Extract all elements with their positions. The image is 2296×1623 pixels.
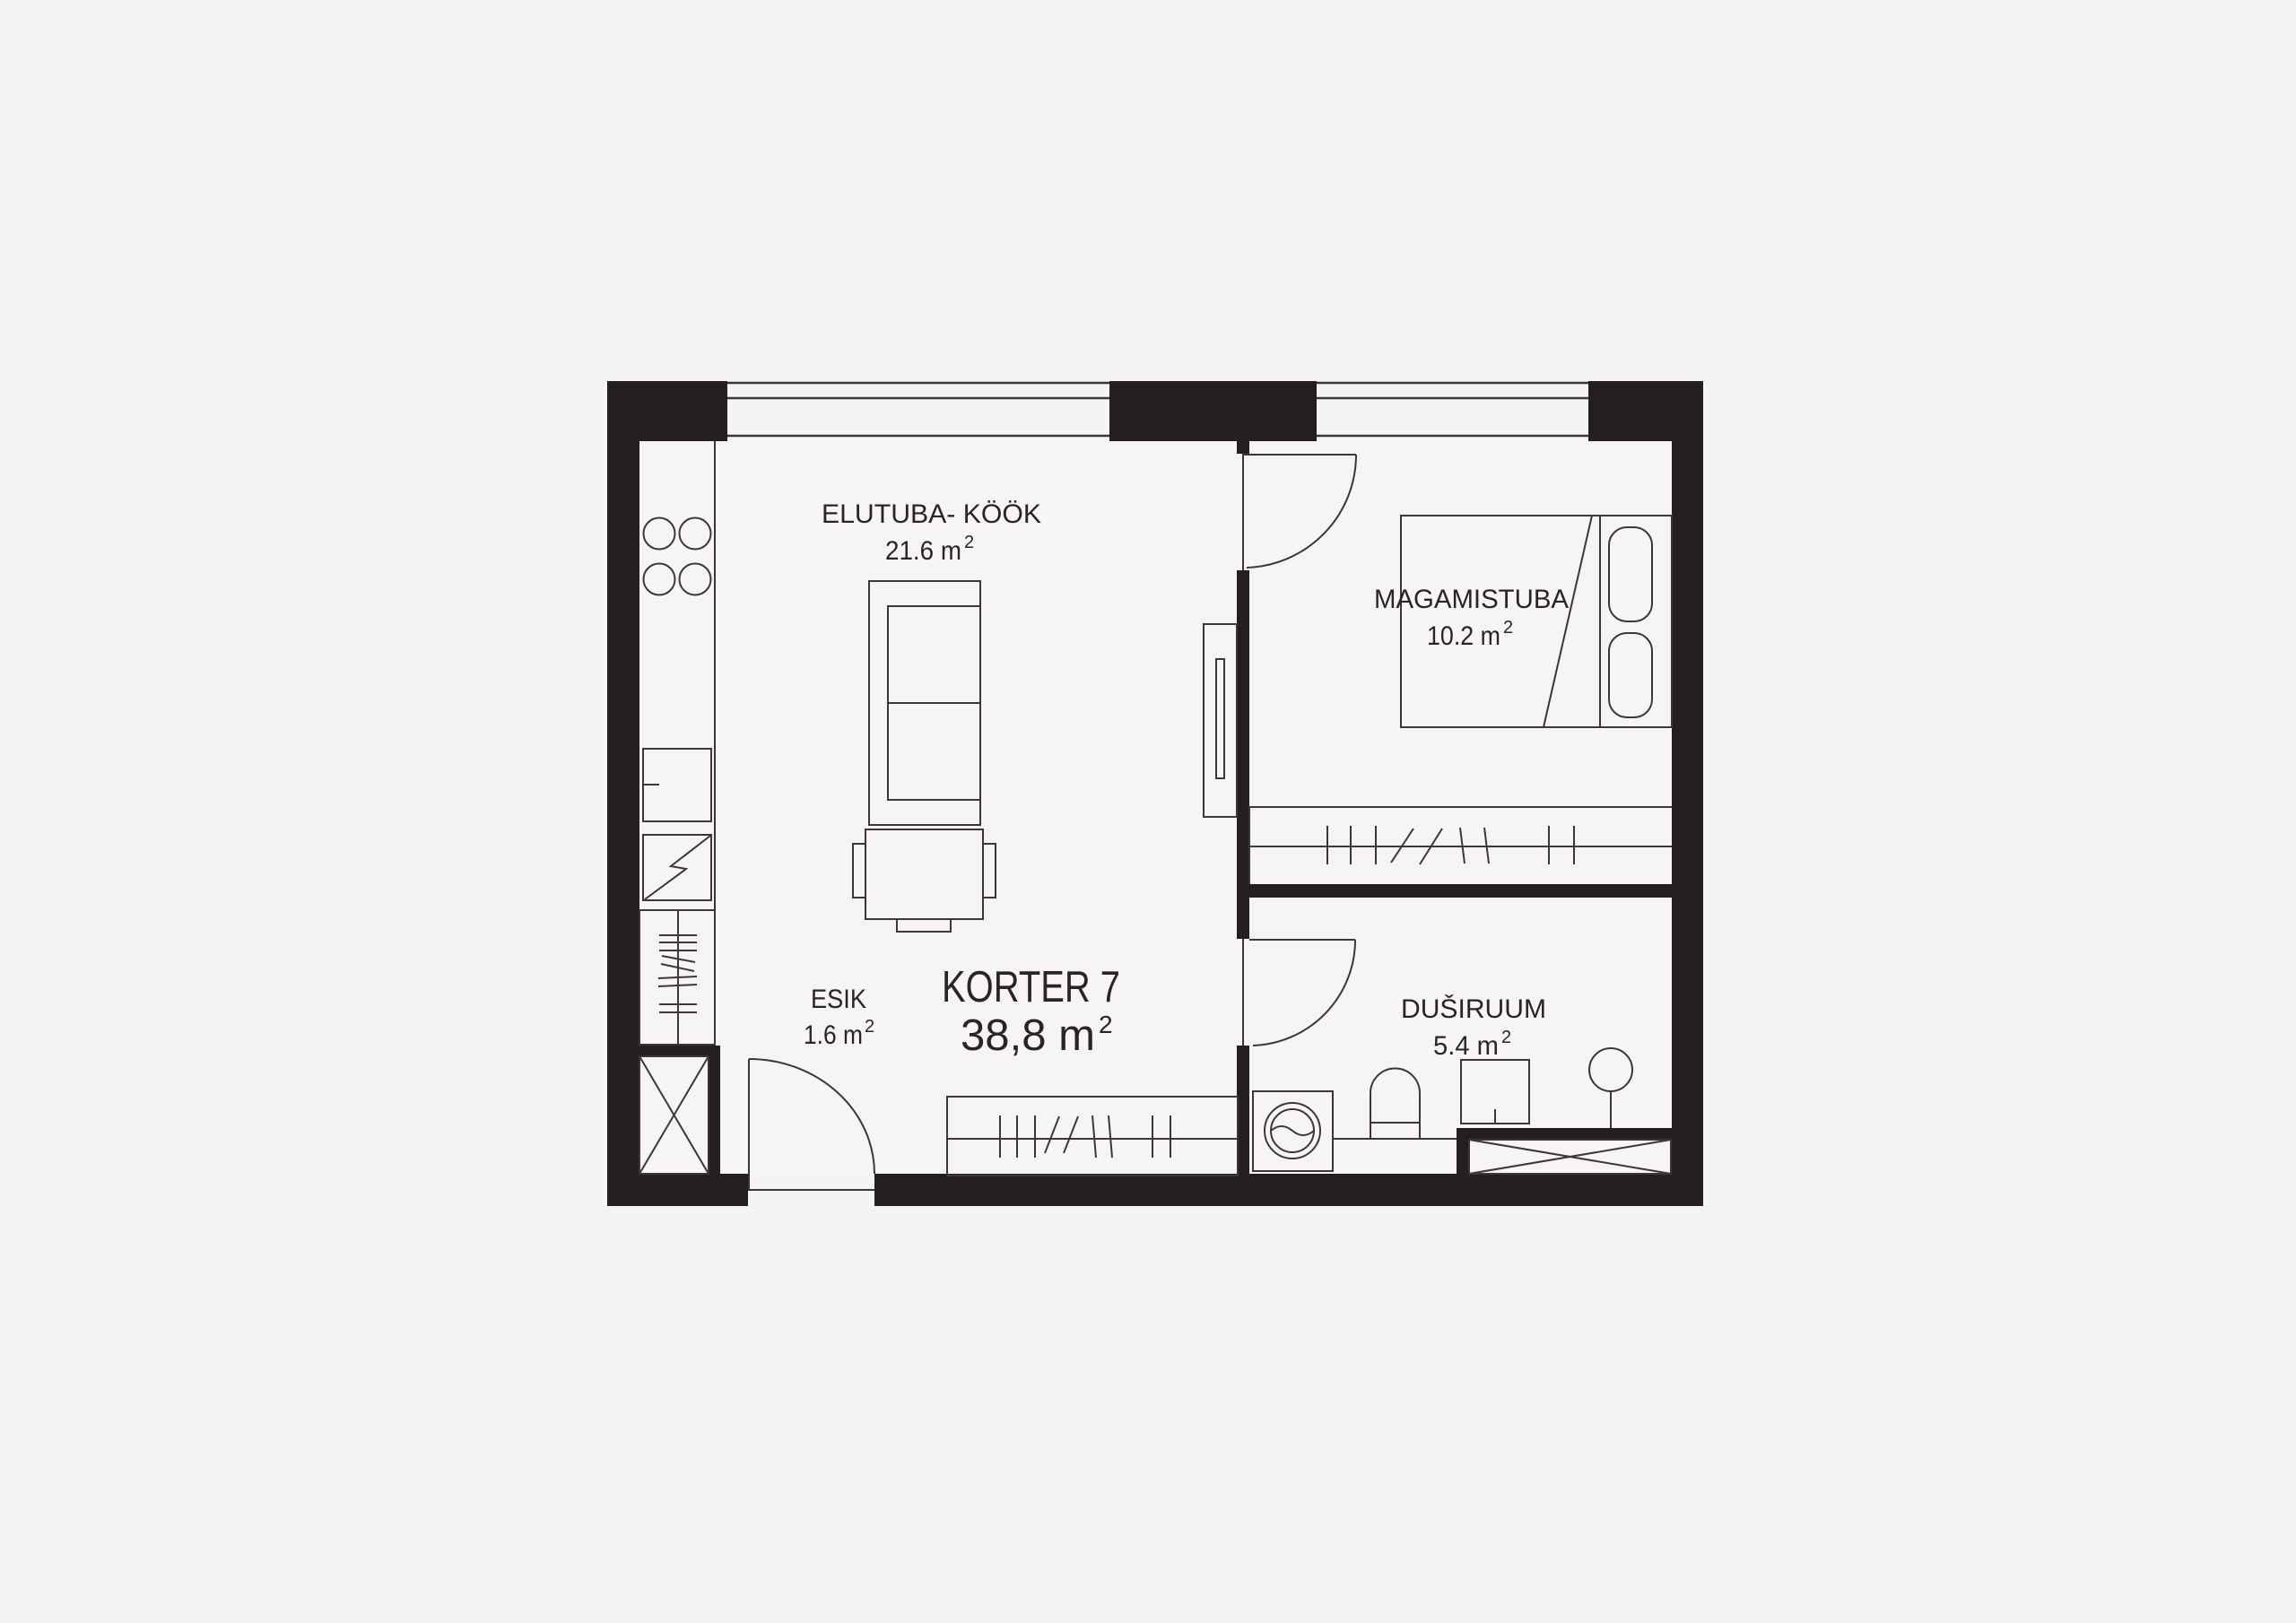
svg-text:5.4 m: 5.4 m — [1433, 1031, 1499, 1061]
svg-text:DUŠIRUUM: DUŠIRUUM — [1401, 994, 1546, 1024]
svg-text:ELUTUBA- KÖÖK: ELUTUBA- KÖÖK — [822, 499, 1041, 529]
svg-text:MAGAMISTUBA: MAGAMISTUBA — [1374, 585, 1569, 614]
svg-text:10.2 m: 10.2 m — [1427, 621, 1500, 651]
svg-text:2: 2 — [1099, 1011, 1113, 1038]
svg-text:2: 2 — [1503, 618, 1513, 638]
svg-text:21.6 m: 21.6 m — [885, 536, 961, 566]
svg-text:1.6 m: 1.6 m — [804, 1020, 863, 1050]
svg-text:2: 2 — [865, 1017, 874, 1037]
svg-text:2: 2 — [964, 533, 974, 552]
svg-text:2: 2 — [1501, 1028, 1511, 1047]
svg-text:ESIK: ESIK — [811, 985, 866, 1014]
svg-text:KORTER 7: KORTER 7 — [942, 963, 1120, 1011]
svg-text:38,8 m: 38,8 m — [961, 1011, 1095, 1060]
